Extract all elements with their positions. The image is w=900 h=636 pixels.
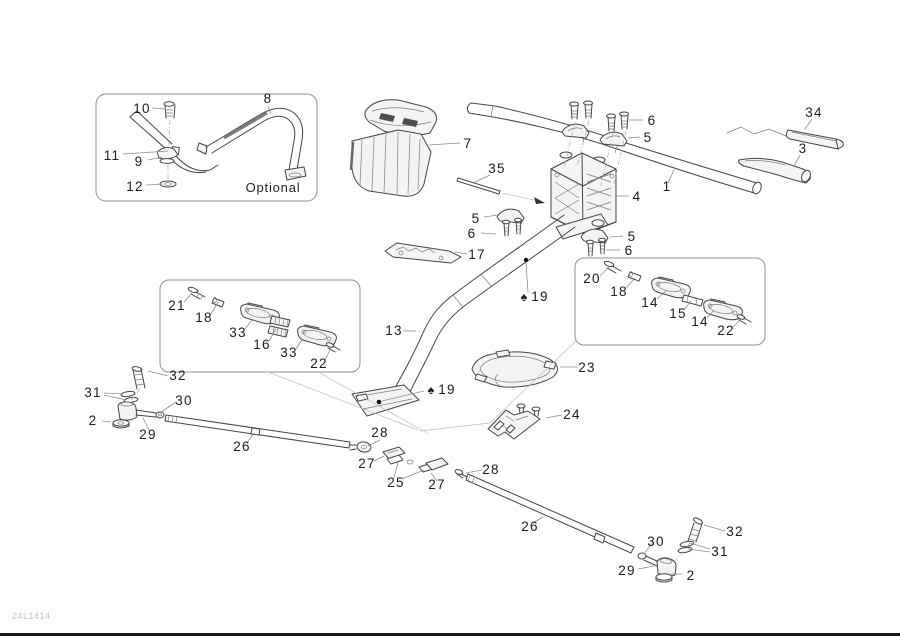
labels-layer: 1081191273565413435617562018141514222118… bbox=[84, 91, 822, 583]
leader-line-3 bbox=[794, 155, 800, 166]
bolt-6 bbox=[584, 101, 593, 118]
steering-exploded-diagram: 1081191273565413435617562018141514222118… bbox=[0, 0, 900, 636]
part-label-5-16: 5 bbox=[628, 229, 637, 244]
leader-line-32 bbox=[704, 525, 725, 531]
position-dot bbox=[524, 258, 528, 262]
part-16-ribbed-blocks bbox=[268, 316, 290, 337]
part-label-1-10: 1 bbox=[663, 179, 672, 194]
leader-line-19 bbox=[526, 263, 528, 292]
part-29-ball-joint bbox=[657, 558, 676, 576]
part-26-tie-rod-lower bbox=[466, 474, 634, 553]
leader-line-12 bbox=[146, 184, 162, 185]
part-18-bushing bbox=[628, 272, 641, 282]
part-label-2-53: 2 bbox=[687, 568, 696, 583]
part-30-nut bbox=[638, 553, 646, 559]
part-32-bolt bbox=[688, 517, 703, 542]
part-13-steering-column bbox=[352, 215, 575, 416]
leader-line-20 bbox=[600, 267, 609, 276]
part-32-bolt bbox=[132, 366, 145, 389]
leader-line-31 bbox=[690, 543, 710, 549]
bolt-6 bbox=[620, 112, 629, 129]
part-label-3-12: 3 bbox=[799, 141, 808, 156]
part-7-handlebar-pad bbox=[351, 100, 437, 197]
part-label-28-47: 28 bbox=[482, 462, 499, 477]
part-20-bolt bbox=[604, 260, 621, 273]
leader-line-7 bbox=[429, 143, 460, 145]
direction-arrow bbox=[534, 197, 545, 204]
part-label-12-4: 12 bbox=[126, 179, 143, 194]
part-label-29-52: 29 bbox=[618, 563, 635, 578]
part-label-18-25: 18 bbox=[195, 310, 212, 325]
part-label-20-18: 20 bbox=[583, 271, 600, 286]
parts-diagram-page: 1081191273565413435617562018141514222118… bbox=[0, 0, 900, 636]
part-label-5-8: 5 bbox=[644, 130, 653, 145]
bolt-6 bbox=[570, 102, 579, 119]
part-label-35-6: 35 bbox=[488, 161, 505, 176]
part-label-31-31: 31 bbox=[84, 385, 101, 400]
part-label-34-11: 34 bbox=[805, 105, 822, 120]
part-35-pin bbox=[457, 178, 545, 204]
part-label-9-3: 9 bbox=[135, 154, 144, 169]
leader-line-25 bbox=[402, 470, 424, 479]
part-12-washer bbox=[160, 181, 176, 187]
part-label-27-44: 27 bbox=[358, 456, 375, 471]
leader-line-34 bbox=[805, 119, 812, 129]
optional-label: Optional bbox=[246, 180, 301, 195]
bolt-6 bbox=[607, 114, 616, 131]
part-label-28-43: 28 bbox=[371, 425, 388, 440]
part-26-tie-rod-upper bbox=[165, 415, 350, 448]
detail-box-frame bbox=[160, 280, 360, 372]
part-label-16-27: 16 bbox=[253, 337, 270, 352]
leader-line-29 bbox=[638, 566, 654, 569]
part-label-19-37: 19 bbox=[531, 289, 548, 304]
part-34-grip-strip bbox=[727, 127, 843, 149]
part-label-26-35: 26 bbox=[233, 439, 250, 454]
part-label-19-40: 19 bbox=[438, 382, 455, 397]
leader-line-32 bbox=[148, 371, 168, 376]
part-label-30-49: 30 bbox=[647, 534, 664, 549]
part-label-6-7: 6 bbox=[648, 113, 657, 128]
part-label-14-22: 14 bbox=[691, 314, 708, 329]
part-23-plate bbox=[472, 350, 558, 387]
part-label-7-5: 7 bbox=[464, 136, 473, 151]
part-label-33-28: 33 bbox=[280, 345, 297, 360]
lower-clamp-bolts-left bbox=[497, 209, 524, 236]
leader-line-35 bbox=[473, 175, 490, 183]
leader-line-5 bbox=[610, 236, 623, 237]
detail-box-frame bbox=[575, 258, 765, 345]
part-label-29-34: 29 bbox=[139, 427, 156, 442]
part-30-nut bbox=[156, 412, 164, 418]
part-3-grip bbox=[739, 158, 813, 183]
part-label-31-51: 31 bbox=[711, 544, 728, 559]
part-label-25-45: 25 bbox=[387, 475, 404, 490]
part-label-24-42: 24 bbox=[563, 407, 580, 422]
part-8-grab-handle bbox=[197, 108, 306, 180]
part-9-clamp bbox=[157, 148, 178, 164]
part-label-15-21: 15 bbox=[669, 306, 686, 321]
part-label-26-48: 26 bbox=[521, 519, 538, 534]
part-label-33-26: 33 bbox=[229, 325, 246, 340]
part-label-11-2: 11 bbox=[104, 148, 120, 163]
part-label-23-41: 23 bbox=[578, 360, 595, 375]
leader-line-24 bbox=[546, 415, 562, 418]
clamp-5 bbox=[562, 124, 589, 138]
drawing-code: 24L1414 bbox=[12, 611, 51, 621]
part-4-riser-block bbox=[551, 152, 616, 239]
part-label-17-15: 17 bbox=[468, 247, 485, 262]
part-label-6-14: 6 bbox=[468, 226, 477, 241]
part-label-30-32: 30 bbox=[175, 393, 192, 408]
part-label-21-24: 21 bbox=[168, 298, 185, 313]
leader-line-5 bbox=[484, 215, 498, 217]
part-14-clamp bbox=[704, 299, 743, 320]
part-label-6-17: 6 bbox=[625, 243, 634, 258]
leader-line-6 bbox=[481, 233, 496, 234]
leader-line-10 bbox=[152, 108, 166, 109]
part-31-washer bbox=[678, 546, 693, 553]
leader-line-5 bbox=[628, 137, 640, 138]
left-fastener-group bbox=[113, 366, 164, 428]
part-label-13-38: 13 bbox=[385, 323, 402, 338]
part-label-4-9: 4 bbox=[633, 189, 642, 204]
part-28-bolt bbox=[455, 469, 467, 478]
lower-clamp-bolts-right bbox=[581, 229, 608, 256]
part-label-22-29: 22 bbox=[310, 356, 327, 371]
part-29-ball-joint bbox=[118, 402, 156, 420]
part-24-bracket bbox=[488, 404, 540, 439]
part-label-♠-39: ♠ bbox=[428, 383, 435, 397]
part-label-27-46: 27 bbox=[428, 477, 445, 492]
part-label-10-0: 10 bbox=[133, 101, 150, 116]
part-15-spacer bbox=[682, 295, 703, 306]
part-2-nut bbox=[656, 574, 672, 582]
position-dot bbox=[377, 400, 382, 405]
leader-line-17 bbox=[455, 252, 467, 254]
part-label-2-33: 2 bbox=[89, 413, 98, 428]
part-17-bracket-strip bbox=[385, 243, 461, 263]
part-label-♠-36: ♠ bbox=[521, 290, 528, 304]
part-label-32-50: 32 bbox=[726, 524, 743, 539]
part-label-22-23: 22 bbox=[717, 323, 734, 338]
part-28-joint bbox=[356, 441, 372, 453]
leader-line-2 bbox=[102, 421, 111, 422]
leader-line-31 bbox=[104, 393, 123, 394]
leader-line-28 bbox=[466, 470, 482, 473]
part-label-18-19: 18 bbox=[610, 284, 627, 299]
part-label-32-30: 32 bbox=[169, 368, 186, 383]
part-label-5-13: 5 bbox=[472, 211, 481, 226]
part-2-nut bbox=[113, 420, 129, 428]
part-21-bolt bbox=[188, 286, 205, 299]
leader-line-30 bbox=[161, 402, 176, 412]
part-label-14-20: 14 bbox=[641, 295, 658, 310]
part-10-bolt bbox=[164, 102, 175, 118]
part-label-8-1: 8 bbox=[264, 91, 273, 106]
leader-line-28 bbox=[368, 440, 380, 446]
